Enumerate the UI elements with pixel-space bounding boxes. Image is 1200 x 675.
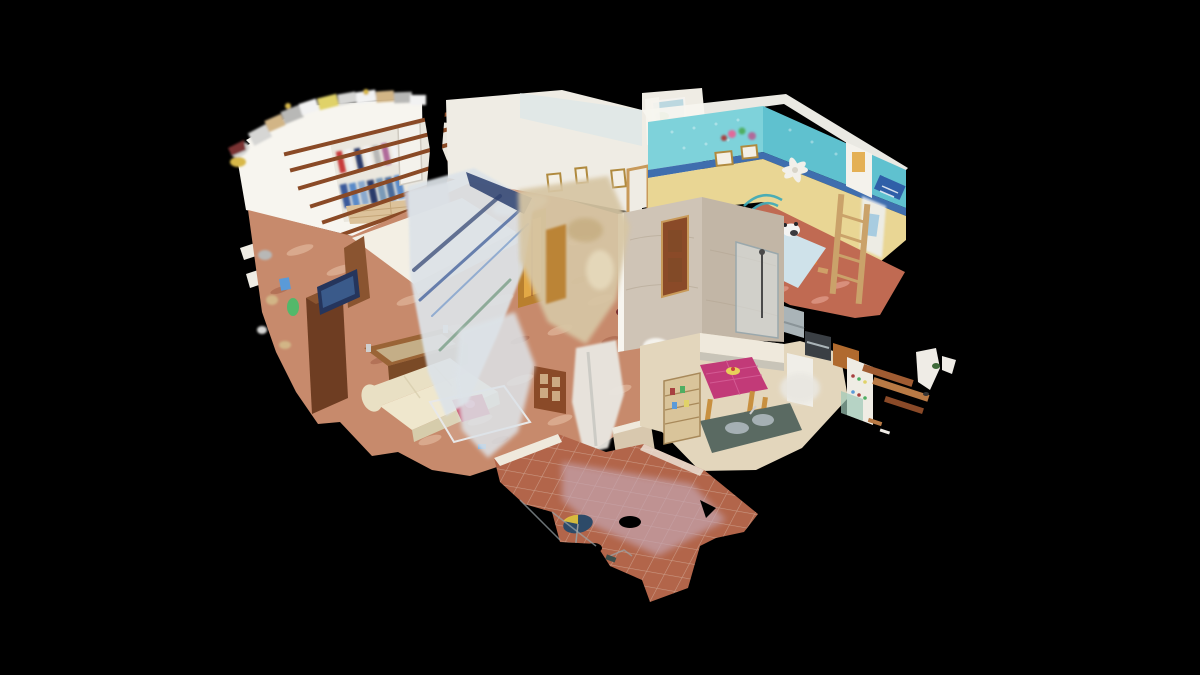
dark-fleck [923, 392, 929, 396]
larder-shelves [664, 373, 700, 444]
lit-window [852, 152, 865, 172]
dollhouse-scene[interactable] [0, 0, 1200, 675]
green-fleck [932, 363, 940, 369]
green-vase [287, 298, 299, 316]
shower-enclosure [736, 242, 778, 338]
front-door [534, 366, 566, 414]
viewer-canvas[interactable] [0, 0, 1200, 675]
marble-slab-left [618, 197, 702, 352]
scan-hole [619, 516, 641, 528]
bathroom-door [662, 216, 688, 297]
scan-melt-blob [780, 373, 820, 403]
panda-plush [782, 222, 800, 237]
blue-bag [279, 277, 291, 291]
